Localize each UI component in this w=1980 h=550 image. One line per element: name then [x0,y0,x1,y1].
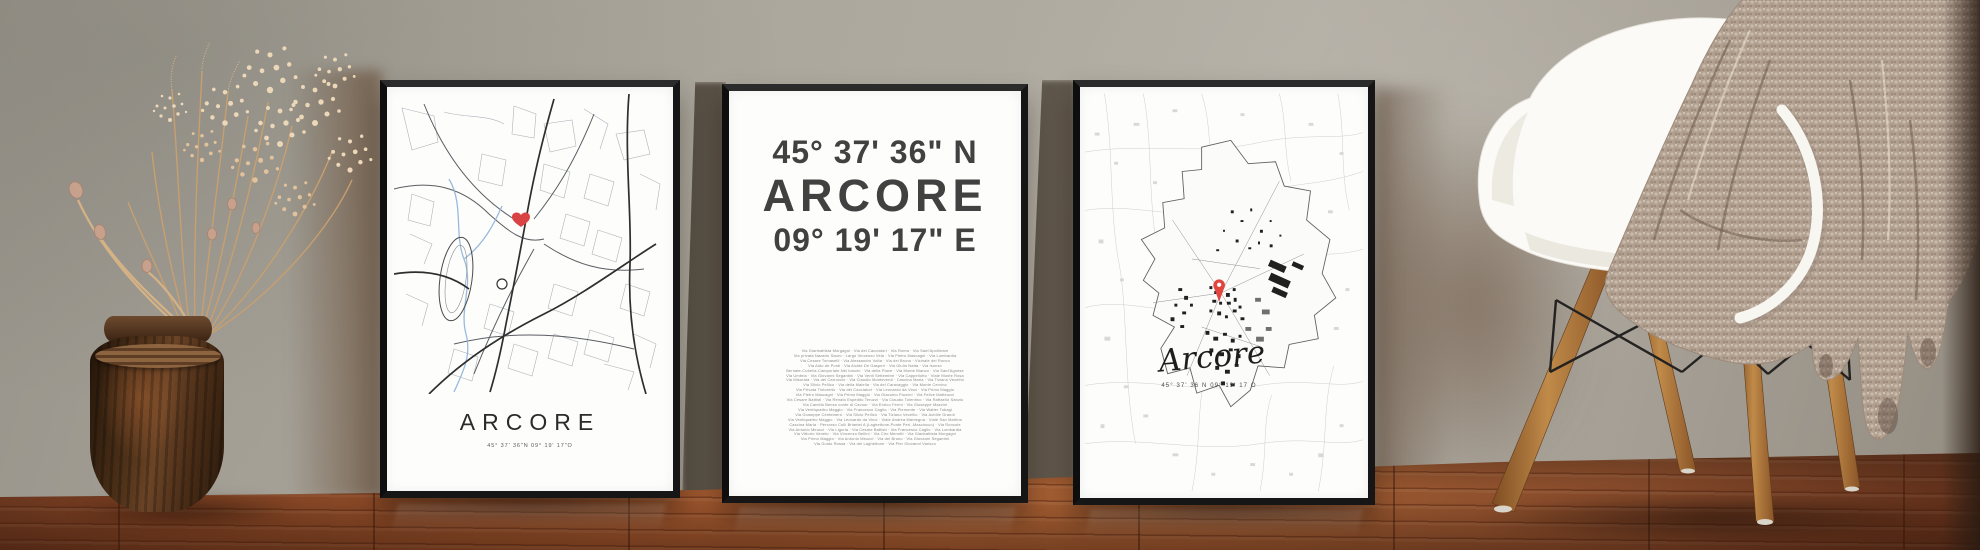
poster1-coordinates: 45° 37' 36"N 09° 19' 17"O [387,443,673,449]
chair-and-blanket [1430,0,1980,550]
gypsophila-sprays [153,46,373,172]
longitude-text: 09° 19' 17" E [729,221,1021,259]
dried-grass [171,42,240,92]
poster1-reflection [392,504,666,532]
flower-stems [128,72,352,333]
poster-map-light: ARCORE 45° 37' 36"N 09° 19' 17"O [380,80,680,498]
poster-coordinates: 45° 37' 36" N ARCORE 09° 19' 17" E Via G… [722,84,1028,503]
poster2-headline: 45° 37' 36" N ARCORE 09° 19' 17" E [729,133,1021,259]
street-map-light [394,94,666,394]
latitude-text: 45° 37' 36" N [729,133,1021,171]
vase-rope [95,344,221,368]
city-name: ARCORE [729,171,1021,221]
chair-leg-glides [1494,469,1859,526]
poster3-reflection [1085,509,1363,537]
street-names-block: Via Gianbattista Morgagni · Via dei Cacc… [739,349,1011,447]
street-line: Via Guido Rossa · Via del Laghettone · V… [739,442,1011,447]
room-scene: ARCORE 45° 37' 36"N 09° 19' 17"O 45° 37'… [0,0,1980,550]
heart-marker [512,213,530,227]
poster-map-detailed: Arcore 45° 37' 36 N 09° 19' 17 O [1073,80,1375,505]
river [449,179,502,392]
poster1-title: ARCORE [387,409,673,436]
dried-flowers [30,28,380,338]
racetrack [434,235,477,323]
street-map-detailed [1085,92,1363,493]
poster3-coordinates: 45° 37' 36 N 09° 19' 17 O [1080,383,1338,389]
poster2-reflection [734,507,1016,535]
gypsophila-sprays-dark [183,130,316,216]
roundabout [497,279,507,289]
